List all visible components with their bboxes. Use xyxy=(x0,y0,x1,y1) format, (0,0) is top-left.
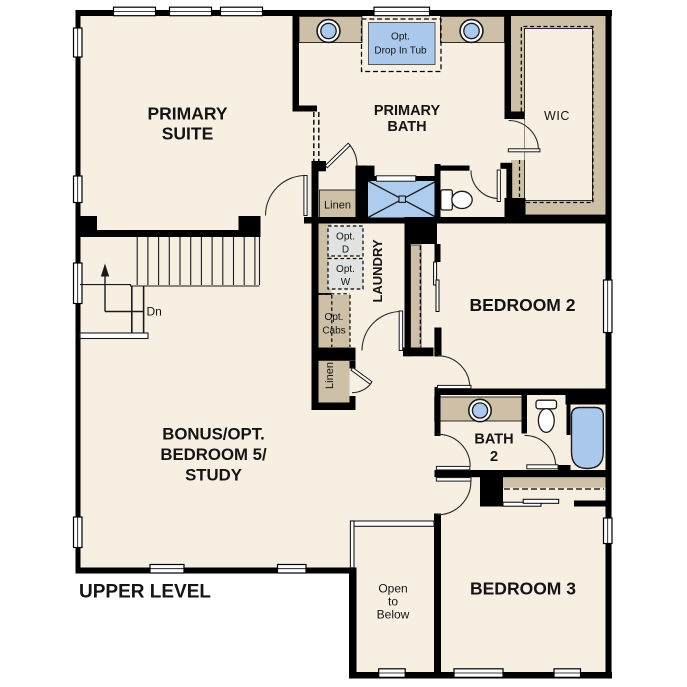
svg-text:Below: Below xyxy=(377,608,410,622)
svg-text:Opt.: Opt. xyxy=(325,312,344,323)
svg-text:WIC: WIC xyxy=(544,109,570,123)
svg-text:Opt.: Opt. xyxy=(391,32,410,43)
svg-text:BEDROOM 3: BEDROOM 3 xyxy=(470,578,576,598)
svg-text:D: D xyxy=(342,245,349,256)
svg-text:Linen: Linen xyxy=(324,362,336,389)
svg-text:Opt.: Opt. xyxy=(336,264,355,275)
svg-text:Drop In Tub: Drop In Tub xyxy=(374,46,427,57)
svg-text:UPPER LEVEL: UPPER LEVEL xyxy=(79,582,211,603)
svg-text:STUDY: STUDY xyxy=(185,466,242,485)
svg-text:BATH: BATH xyxy=(474,432,513,448)
svg-text:Dn: Dn xyxy=(147,305,162,319)
svg-text:Opt.: Opt. xyxy=(336,232,355,243)
svg-text:2: 2 xyxy=(490,449,498,465)
svg-text:Cabs: Cabs xyxy=(322,326,345,337)
svg-text:BATH: BATH xyxy=(387,119,426,135)
svg-text:Linen: Linen xyxy=(324,200,351,212)
svg-text:BONUS/OPT.: BONUS/OPT. xyxy=(162,425,265,444)
svg-text:LAUNDRY: LAUNDRY xyxy=(370,239,385,302)
svg-text:Open: Open xyxy=(378,582,407,596)
svg-text:SUITE: SUITE xyxy=(162,124,214,144)
svg-text:PRIMARY: PRIMARY xyxy=(374,103,441,119)
svg-text:W: W xyxy=(341,277,351,288)
svg-text:to: to xyxy=(388,595,398,609)
svg-text:BEDROOM 5/: BEDROOM 5/ xyxy=(160,445,267,464)
svg-text:PRIMARY: PRIMARY xyxy=(147,104,227,124)
svg-text:BEDROOM 2: BEDROOM 2 xyxy=(470,295,576,315)
